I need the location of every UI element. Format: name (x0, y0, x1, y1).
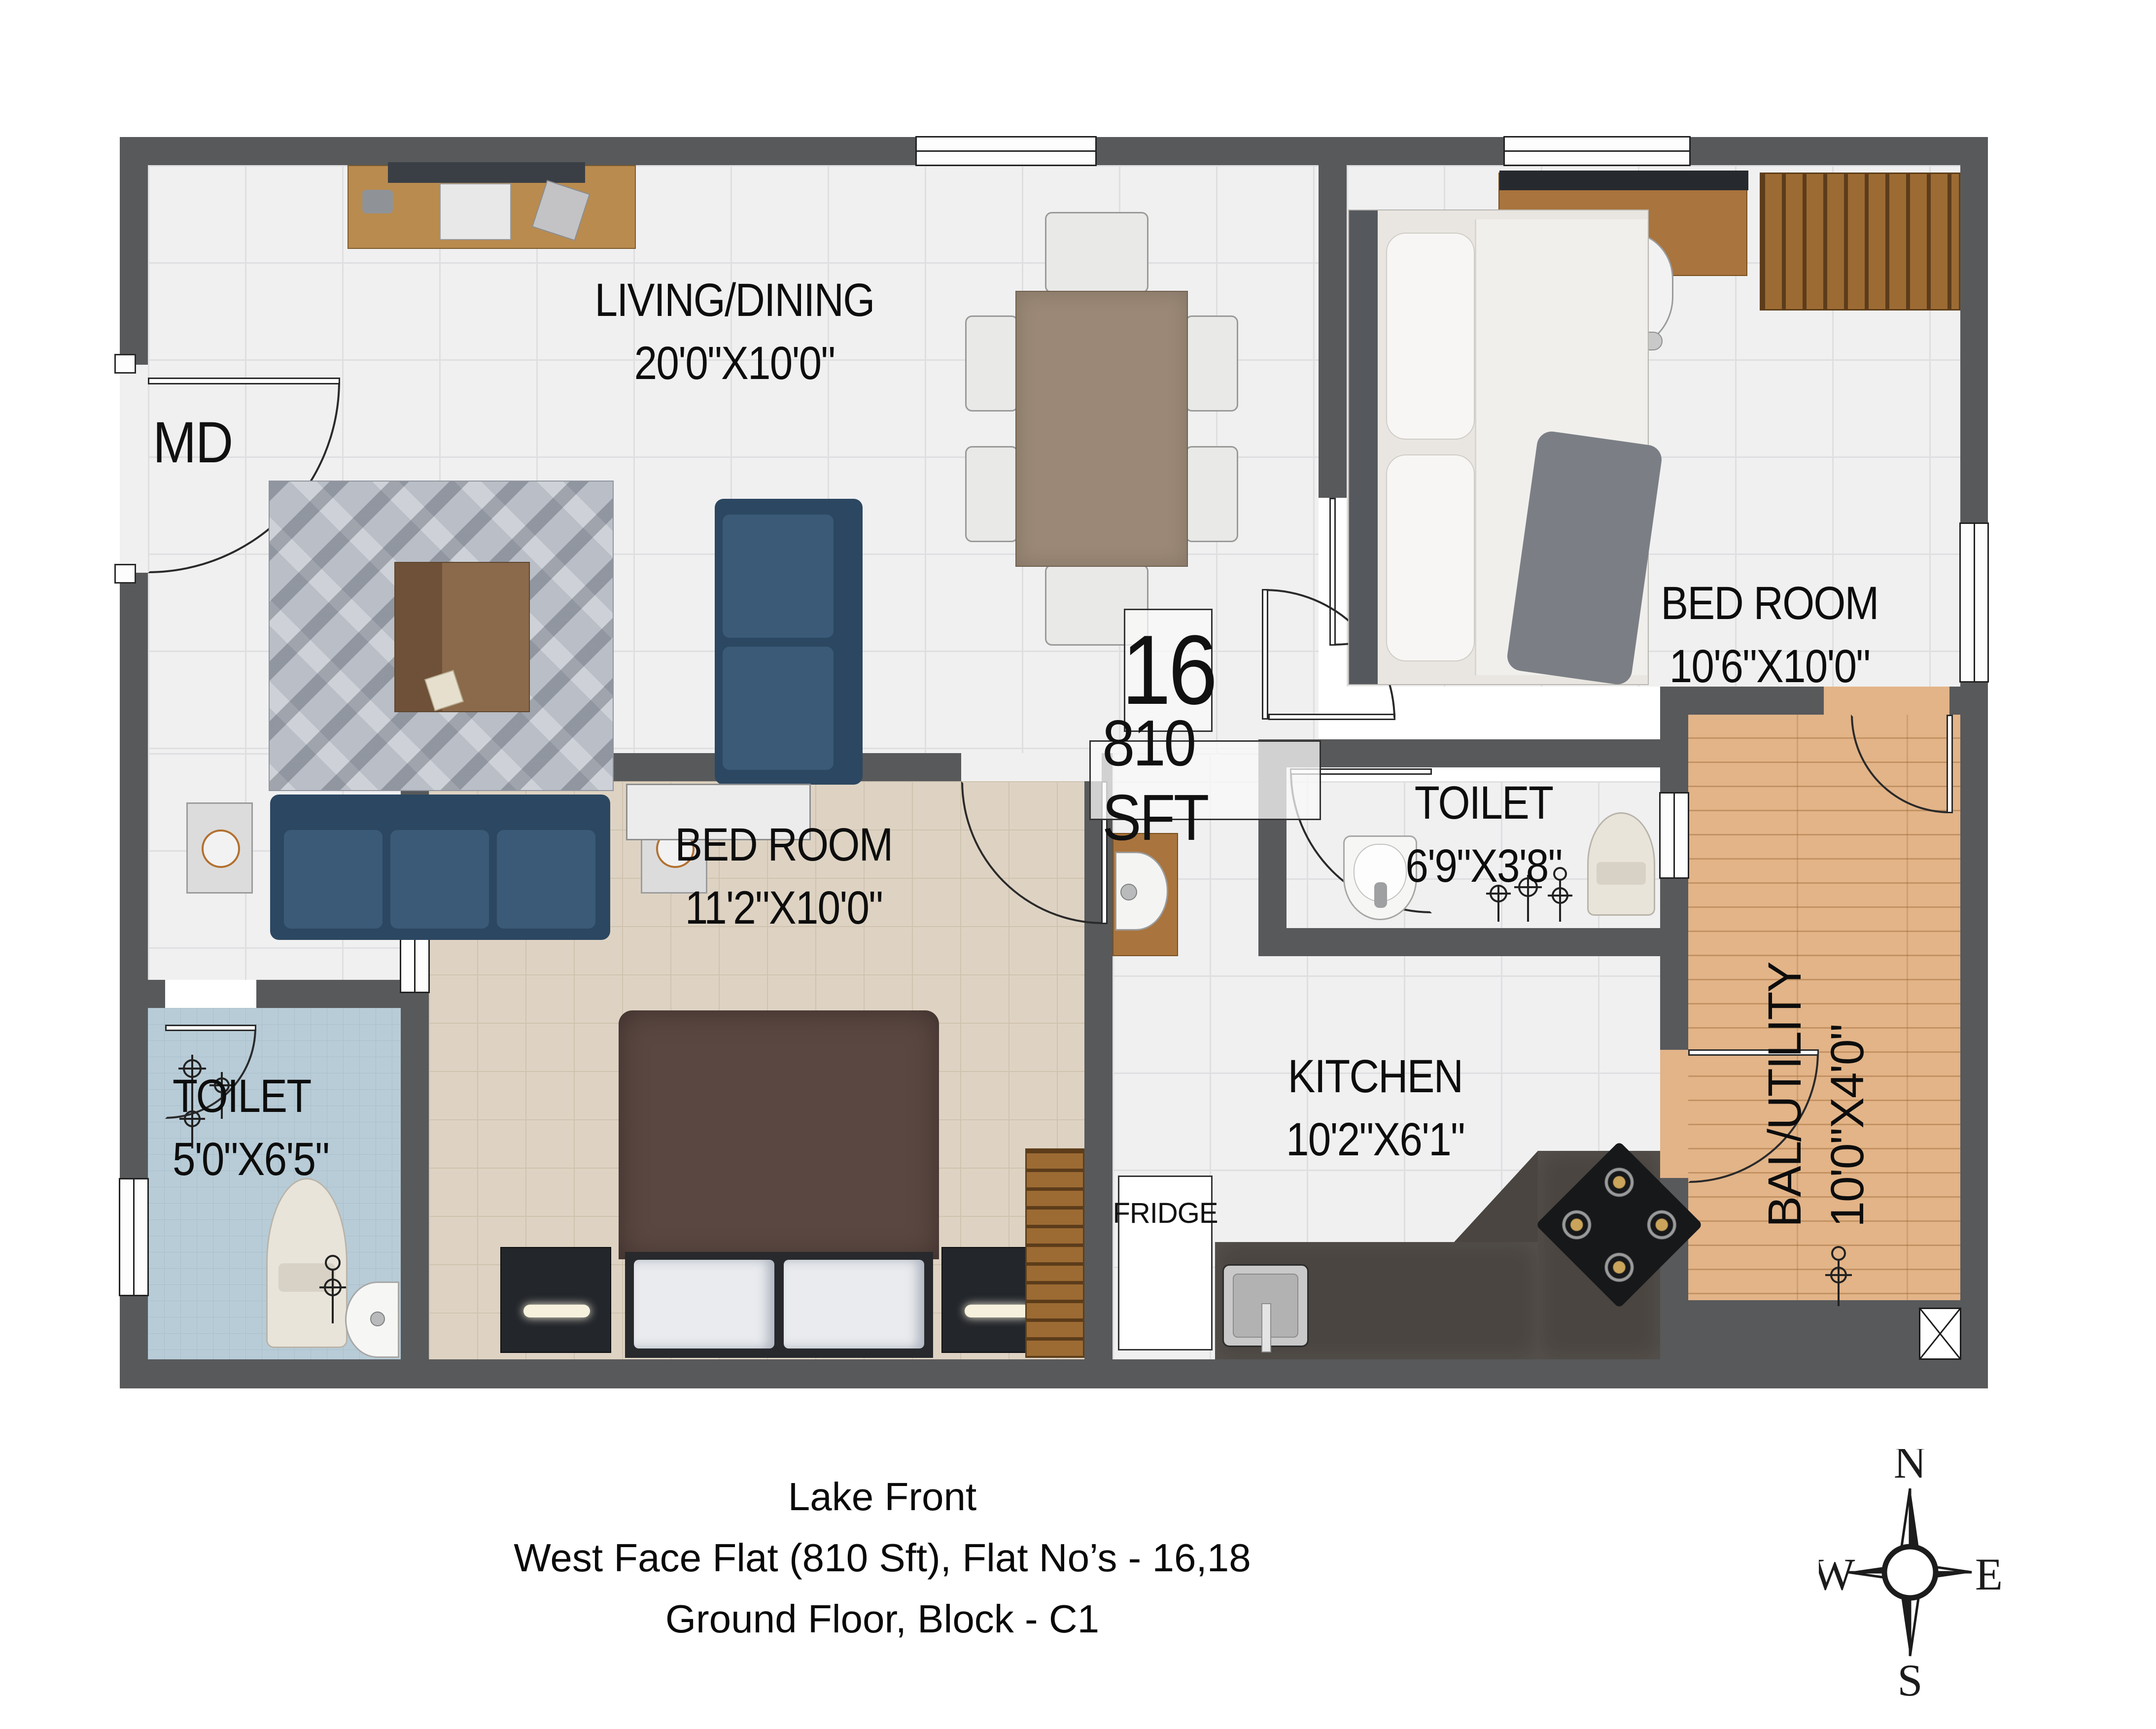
main-door-text: MD (153, 410, 233, 475)
wall-living-bedroomtop (1319, 165, 1347, 498)
dining-chair-left-1 (965, 315, 1018, 412)
desk-items (362, 190, 393, 213)
toiletleft-basin-tap (370, 1312, 385, 1326)
living-name: LIVING/DINING (518, 269, 951, 332)
window-left-toilet (119, 1178, 149, 1296)
kitchen-dims: 10'2"X6'1" (1197, 1108, 1553, 1171)
gap-main-door (120, 365, 148, 573)
window-toiletright-balcony (1659, 792, 1689, 879)
toiletright-dims: 6'9"X3'8" (1332, 834, 1635, 898)
balcony-name: BAL/UTILITY (1758, 922, 1812, 1227)
nightstand-left (500, 1247, 611, 1353)
stove-burner-3 (1551, 1199, 1602, 1251)
dining-chair-right-1 (1185, 315, 1238, 412)
title-block: Lake Front West Face Flat (810 Sft), Fla… (439, 1466, 1326, 1650)
fridge-box: FRIDGE (1118, 1176, 1213, 1350)
bedroomtop-label: BED ROOM 10'6"X10'0" (1574, 572, 1965, 698)
desk-top-shelf (388, 162, 585, 183)
toiletright-label: TOILET 6'9"X3'8" (1332, 771, 1635, 898)
bedroomtop-name: BED ROOM (1574, 572, 1965, 635)
wall-toiletleft-top-a (120, 980, 165, 1008)
bedroommid-label: BED ROOM 11'2"X10'0" (567, 813, 1001, 940)
compass-s: S (1897, 1655, 1922, 1705)
wall-toiletright-bottom (1258, 928, 1688, 956)
duct-shaft-x-icon (1920, 1309, 1960, 1358)
sofa-right-cushion-1 (723, 515, 834, 638)
bed-mid-pillow-2 (784, 1260, 924, 1349)
stove-burner-2 (1636, 1199, 1688, 1251)
toiletleft-label: TOILET 5'0"X6'5" (173, 1065, 398, 1191)
gap-bedroommid-door (961, 753, 1102, 781)
compass-n: N (1894, 1449, 1926, 1487)
bed-mid-quilt (619, 1010, 939, 1259)
sofa-bottom (270, 795, 610, 940)
unit-area-box: 810 SFT (1089, 740, 1321, 820)
floor-plan-page: FRIDGE LIVING/DINING 20'0"X10'0" BED ROO… (0, 0, 2156, 1729)
dining-chair-top (1045, 212, 1148, 293)
bed-top-pillow-1 (1386, 233, 1475, 440)
sofa-bottom-cushion-2 (390, 830, 489, 929)
bedroomtop-desk-monitor (1499, 171, 1748, 190)
gap-balcony-kitchen-door (1660, 1050, 1688, 1178)
coffee-table (394, 562, 530, 712)
study-desk (348, 165, 636, 249)
toiletleft-dims: 5'0"X6'5" (173, 1128, 398, 1191)
toiletright-name: TOILET (1332, 771, 1635, 834)
wall-toiletright-top (1258, 739, 1688, 767)
bed-top-pillow-2 (1386, 454, 1475, 661)
main-door-jamb-bottom (114, 564, 136, 584)
window-top-bedroom (1503, 136, 1691, 166)
window-top-dining (915, 136, 1097, 166)
outer-wall-right (1960, 137, 1988, 1388)
kitchen-name: KITCHEN (1197, 1045, 1553, 1108)
main-door-label: MD (153, 409, 233, 476)
toiletleft-name: TOILET (173, 1065, 398, 1128)
compass-w: W (1819, 1549, 1855, 1599)
corridor-basin-tap (1120, 884, 1137, 900)
balcony-tap-icon (1816, 1245, 1861, 1309)
main-door-jamb-top (114, 354, 136, 374)
compass-rose-icon: N W E S (1819, 1449, 2006, 1715)
wardrobe-mid (1025, 1148, 1084, 1358)
balcony-label: BAL/UTILITY 10'0"X4'0" (1740, 922, 1893, 1227)
kitchen-label: KITCHEN 10'2"X6'1" (1197, 1045, 1553, 1172)
dining-chair-left-2 (965, 446, 1018, 542)
sofa-right-cushion-2 (723, 647, 834, 770)
unit-area: 810 SFT (1102, 706, 1308, 855)
duct-shaft-box (1919, 1308, 1961, 1360)
side-table-left (186, 802, 253, 894)
stove-burner-4 (1594, 1242, 1645, 1293)
bedroommid-name: BED ROOM (567, 813, 1001, 876)
kitchen-sink-tap (1261, 1303, 1271, 1352)
title-line-1: Lake Front (439, 1466, 1326, 1527)
bed-mid-foot (625, 1252, 933, 1358)
bedroomtop-dims: 10'6"X10'0" (1574, 635, 1965, 698)
sofa-right (715, 499, 863, 785)
dining-chair-right-2 (1185, 446, 1238, 542)
bed-top-headboard (1349, 210, 1378, 684)
kitchen-sink (1222, 1264, 1309, 1347)
nightstand-right-lamp (965, 1305, 1031, 1317)
side-table-left-plate (202, 830, 240, 868)
laptop (440, 183, 511, 240)
living-label: LIVING/DINING 20'0"X10'0" (518, 269, 951, 395)
stove-burner-1 (1594, 1156, 1645, 1208)
compass-e: E (1975, 1549, 2003, 1599)
nightstand-left-lamp (523, 1305, 590, 1317)
bed-mid-pillow-1 (634, 1260, 774, 1349)
sofa-bottom-cushion-1 (284, 830, 383, 929)
fridge-label: FRIDGE (1113, 1197, 1217, 1230)
wall-balcony-left-b (1660, 879, 1688, 1050)
compass: N W E S (1819, 1449, 2006, 1715)
bedroommid-dims: 11'2"X10'0" (567, 876, 1001, 939)
wall-balcony-left-a (1660, 715, 1688, 792)
balcony-dims: 10'0"X4'0" (1821, 922, 1875, 1227)
tablet (532, 180, 590, 241)
title-line-2: West Face Flat (810 Sft), Flat No’s - 16… (439, 1527, 1326, 1589)
wardrobe-top (1760, 173, 1960, 311)
dining-table (1015, 291, 1188, 567)
title-line-3: Ground Floor, Block - C1 (439, 1589, 1326, 1650)
living-dims: 20'0"X10'0" (518, 332, 951, 395)
